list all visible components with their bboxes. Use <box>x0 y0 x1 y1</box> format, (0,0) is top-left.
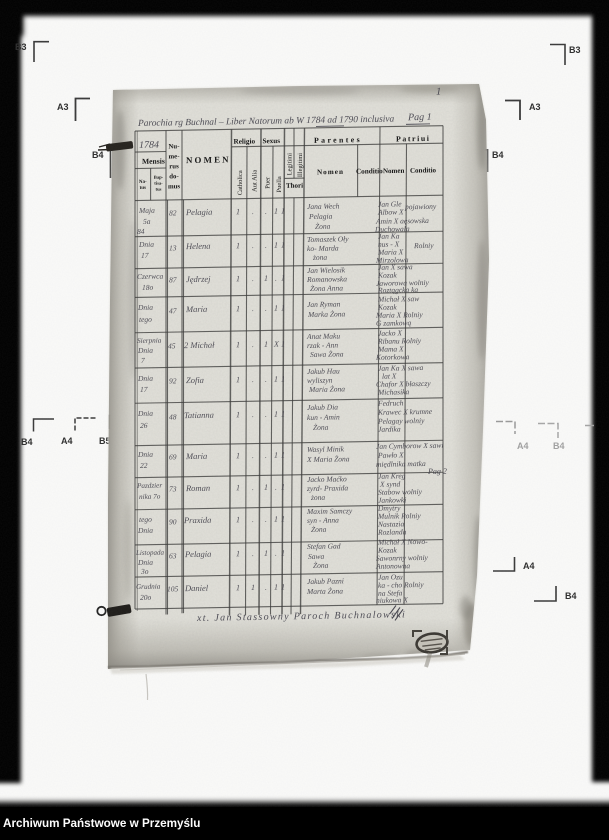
svg-text:Archiwum Państwowe w Przemyślu: Archiwum Państwowe w Przemyślu <box>3 817 200 830</box>
